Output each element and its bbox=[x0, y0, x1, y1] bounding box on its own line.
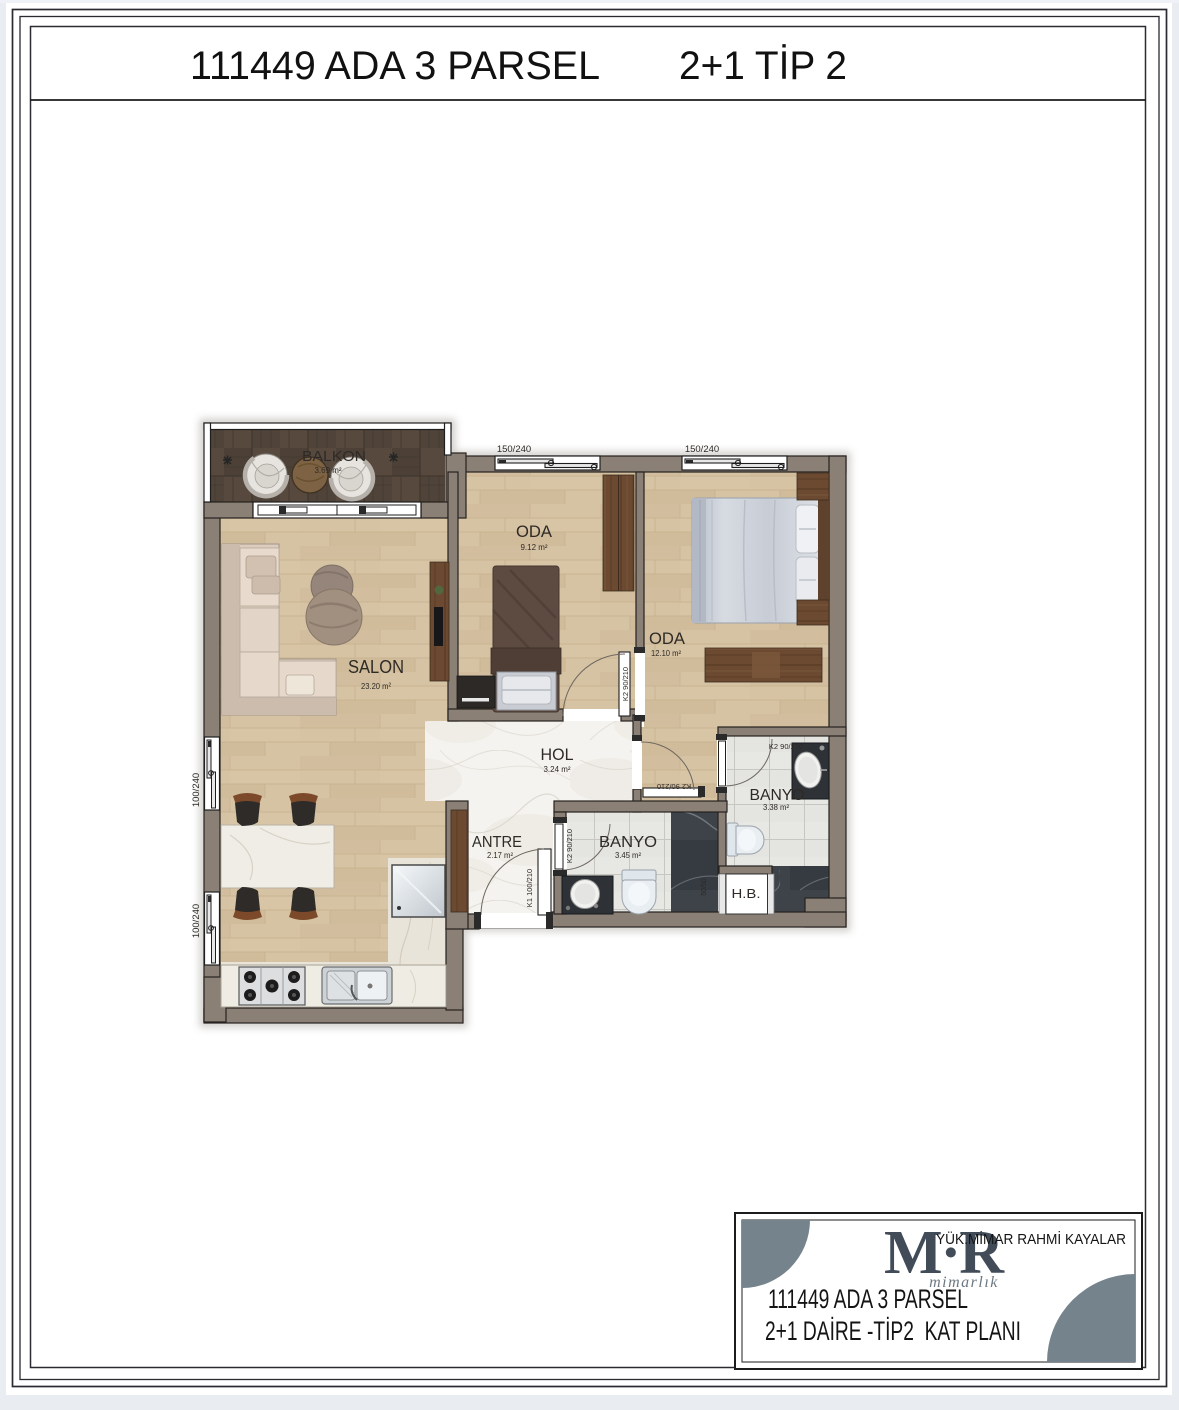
svg-text:K2 90/210: K2 90/210 bbox=[769, 742, 803, 751]
svg-text:3.45 m²: 3.45 m² bbox=[615, 851, 641, 860]
svg-text:23.20 m²: 23.20 m² bbox=[361, 681, 391, 691]
svg-text:3.69 m²: 3.69 m² bbox=[315, 466, 342, 475]
svg-text:YÜK.MİMAR RAHMİ KAYALAR: YÜK.MİMAR RAHMİ KAYALAR bbox=[936, 1230, 1126, 1248]
svg-text:9.12 m²: 9.12 m² bbox=[521, 543, 548, 552]
svg-text:K1 100/210: K1 100/210 bbox=[525, 869, 534, 907]
svg-text:ODA: ODA bbox=[649, 629, 686, 648]
svg-text:111449 ADA 3 PARSEL: 111449 ADA 3 PARSEL bbox=[190, 44, 600, 88]
svg-text:50/50: 50/50 bbox=[701, 878, 708, 896]
svg-text:HOL: HOL bbox=[541, 745, 574, 764]
svg-text:SALON: SALON bbox=[348, 656, 404, 677]
svg-text:3.24 m²: 3.24 m² bbox=[544, 765, 571, 774]
svg-text:BANYO: BANYO bbox=[599, 834, 657, 851]
svg-text:K2 90/210: K2 90/210 bbox=[621, 667, 630, 701]
svg-text:100/240: 100/240 bbox=[191, 773, 202, 807]
svg-text:ODA: ODA bbox=[516, 522, 553, 541]
svg-text:150/240: 150/240 bbox=[497, 444, 531, 455]
svg-text:BALKON: BALKON bbox=[302, 448, 366, 465]
svg-text:K2 90/210: K2 90/210 bbox=[565, 829, 574, 863]
svg-text:2.17 m²: 2.17 m² bbox=[487, 851, 513, 860]
svg-text:3.38 m²: 3.38 m² bbox=[763, 803, 789, 812]
svg-text:100/240: 100/240 bbox=[191, 904, 202, 938]
svg-text:H.B.: H.B. bbox=[732, 887, 761, 901]
svg-text:BANYO: BANYO bbox=[750, 787, 805, 804]
svg-text:2+1 DAİRE -TİP2 KAT PLANI: 2+1 DAİRE -TİP2 KAT PLANI bbox=[765, 1315, 1021, 1346]
svg-text:111449 ADA 3 PARSEL: 111449 ADA 3 PARSEL bbox=[768, 1284, 968, 1314]
svg-text:12.10 m²: 12.10 m² bbox=[651, 649, 681, 658]
svg-text:150/240: 150/240 bbox=[685, 444, 719, 455]
svg-text:ANTRE: ANTRE bbox=[472, 834, 522, 851]
svg-text:K2 90/210: K2 90/210 bbox=[657, 782, 691, 791]
svg-text:2+1 TİP 2: 2+1 TİP 2 bbox=[679, 43, 847, 88]
